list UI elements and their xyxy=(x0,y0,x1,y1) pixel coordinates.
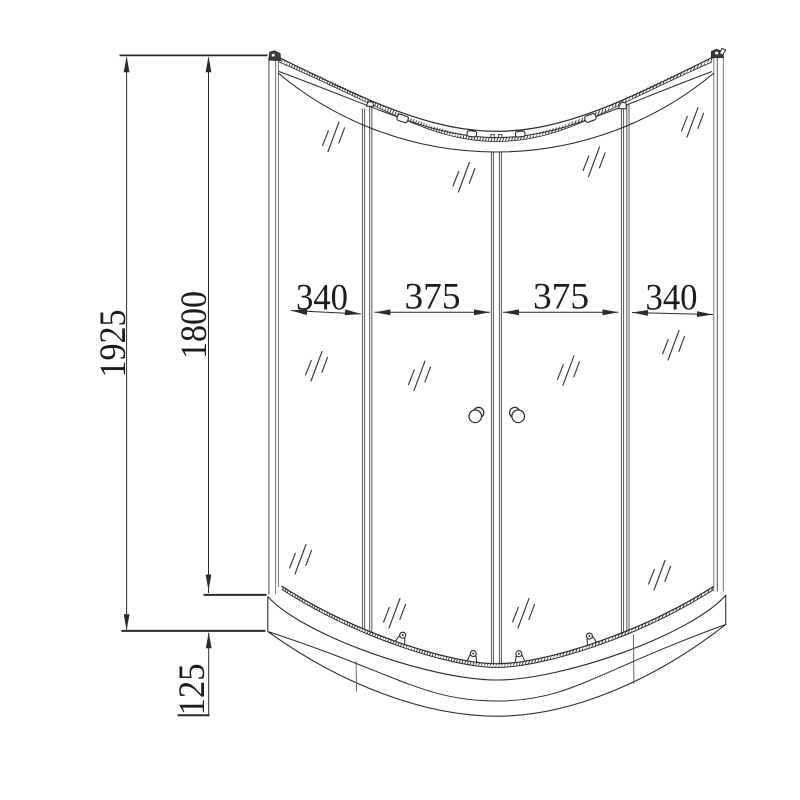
svg-text:340: 340 xyxy=(296,278,348,319)
svg-text:375: 375 xyxy=(405,277,461,318)
svg-text:125: 125 xyxy=(172,663,213,715)
svg-text:1925: 1925 xyxy=(93,310,134,378)
svg-text:340: 340 xyxy=(646,278,698,319)
svg-text:1800: 1800 xyxy=(174,291,215,359)
svg-text:375: 375 xyxy=(533,277,589,318)
